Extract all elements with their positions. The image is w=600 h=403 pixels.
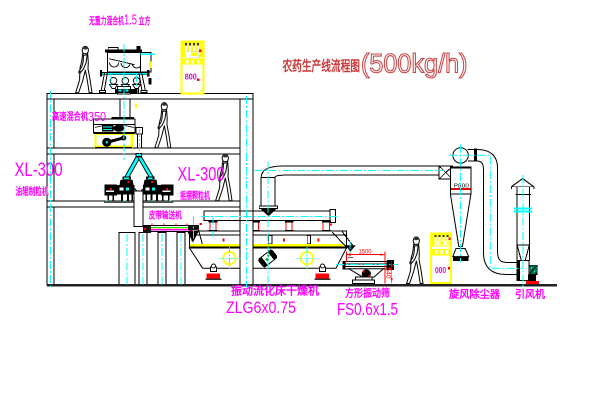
- svg-text:方形振动筛: 方形振动筛: [345, 287, 390, 300]
- svg-text:XL-300: XL-300: [15, 160, 63, 181]
- svg-text:350: 350: [88, 109, 106, 124]
- svg-text:农药生产线流程图: 农药生产线流程图: [282, 58, 360, 74]
- svg-text:油辊制粒机: 油辊制粒机: [16, 185, 49, 198]
- svg-text:皮带输送机: 皮带输送机: [148, 210, 182, 222]
- svg-text:540: 540: [384, 268, 390, 280]
- svg-text:(500kg/h): (500kg/h): [361, 49, 468, 79]
- svg-text:1500: 1500: [359, 249, 372, 256]
- svg-text:800: 800: [185, 71, 197, 81]
- svg-text:振动流化床干燥机: 振动流化床干燥机: [231, 284, 319, 298]
- svg-text:ZLG6x0.75: ZLG6x0.75: [226, 298, 296, 317]
- svg-text:高速混合机: 高速混合机: [52, 110, 88, 123]
- svg-text:XL-300: XL-300: [178, 165, 225, 186]
- svg-text:1.5: 1.5: [124, 13, 137, 29]
- svg-text:FS0.6x1.5: FS0.6x1.5: [337, 299, 398, 319]
- svg-text:引风机: 引风机: [515, 288, 545, 301]
- svg-text:000: 000: [435, 266, 446, 275]
- svg-text:摇摆颗粒机: 摇摆颗粒机: [180, 190, 210, 202]
- svg-text:无重力混合机: 无重力混合机: [88, 15, 124, 28]
- svg-text:旋风除尘器: 旋风除尘器: [448, 288, 500, 301]
- svg-text:立方: 立方: [139, 15, 151, 28]
